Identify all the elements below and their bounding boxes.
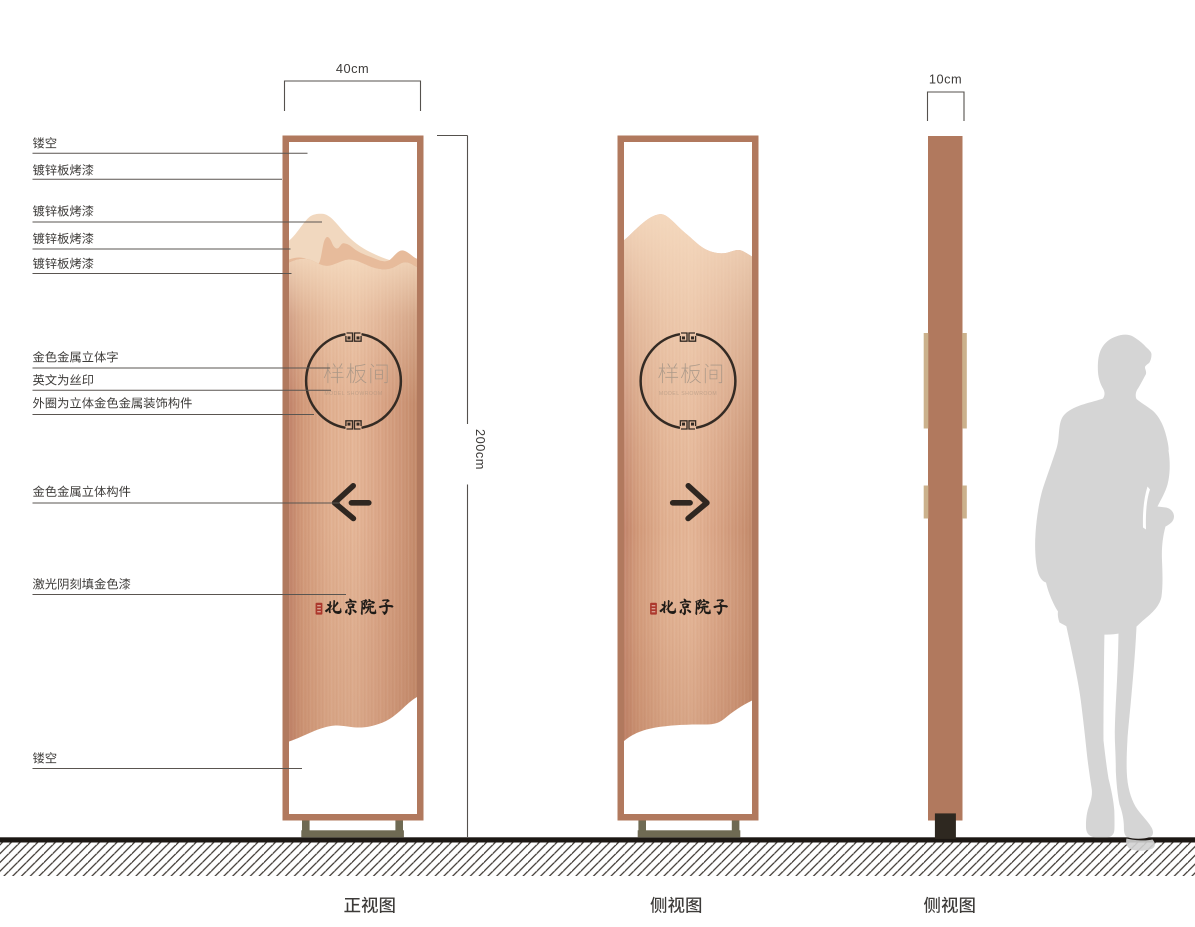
svg-text:200cm: 200cm (473, 429, 488, 470)
svg-text:MODEL SHOWROOM: MODEL SHOWROOM (659, 391, 717, 397)
svg-text:40cm: 40cm (336, 61, 369, 76)
svg-text:MODEL SHOWROOM: MODEL SHOWROOM (324, 391, 382, 397)
svg-text:10cm: 10cm (929, 72, 962, 87)
